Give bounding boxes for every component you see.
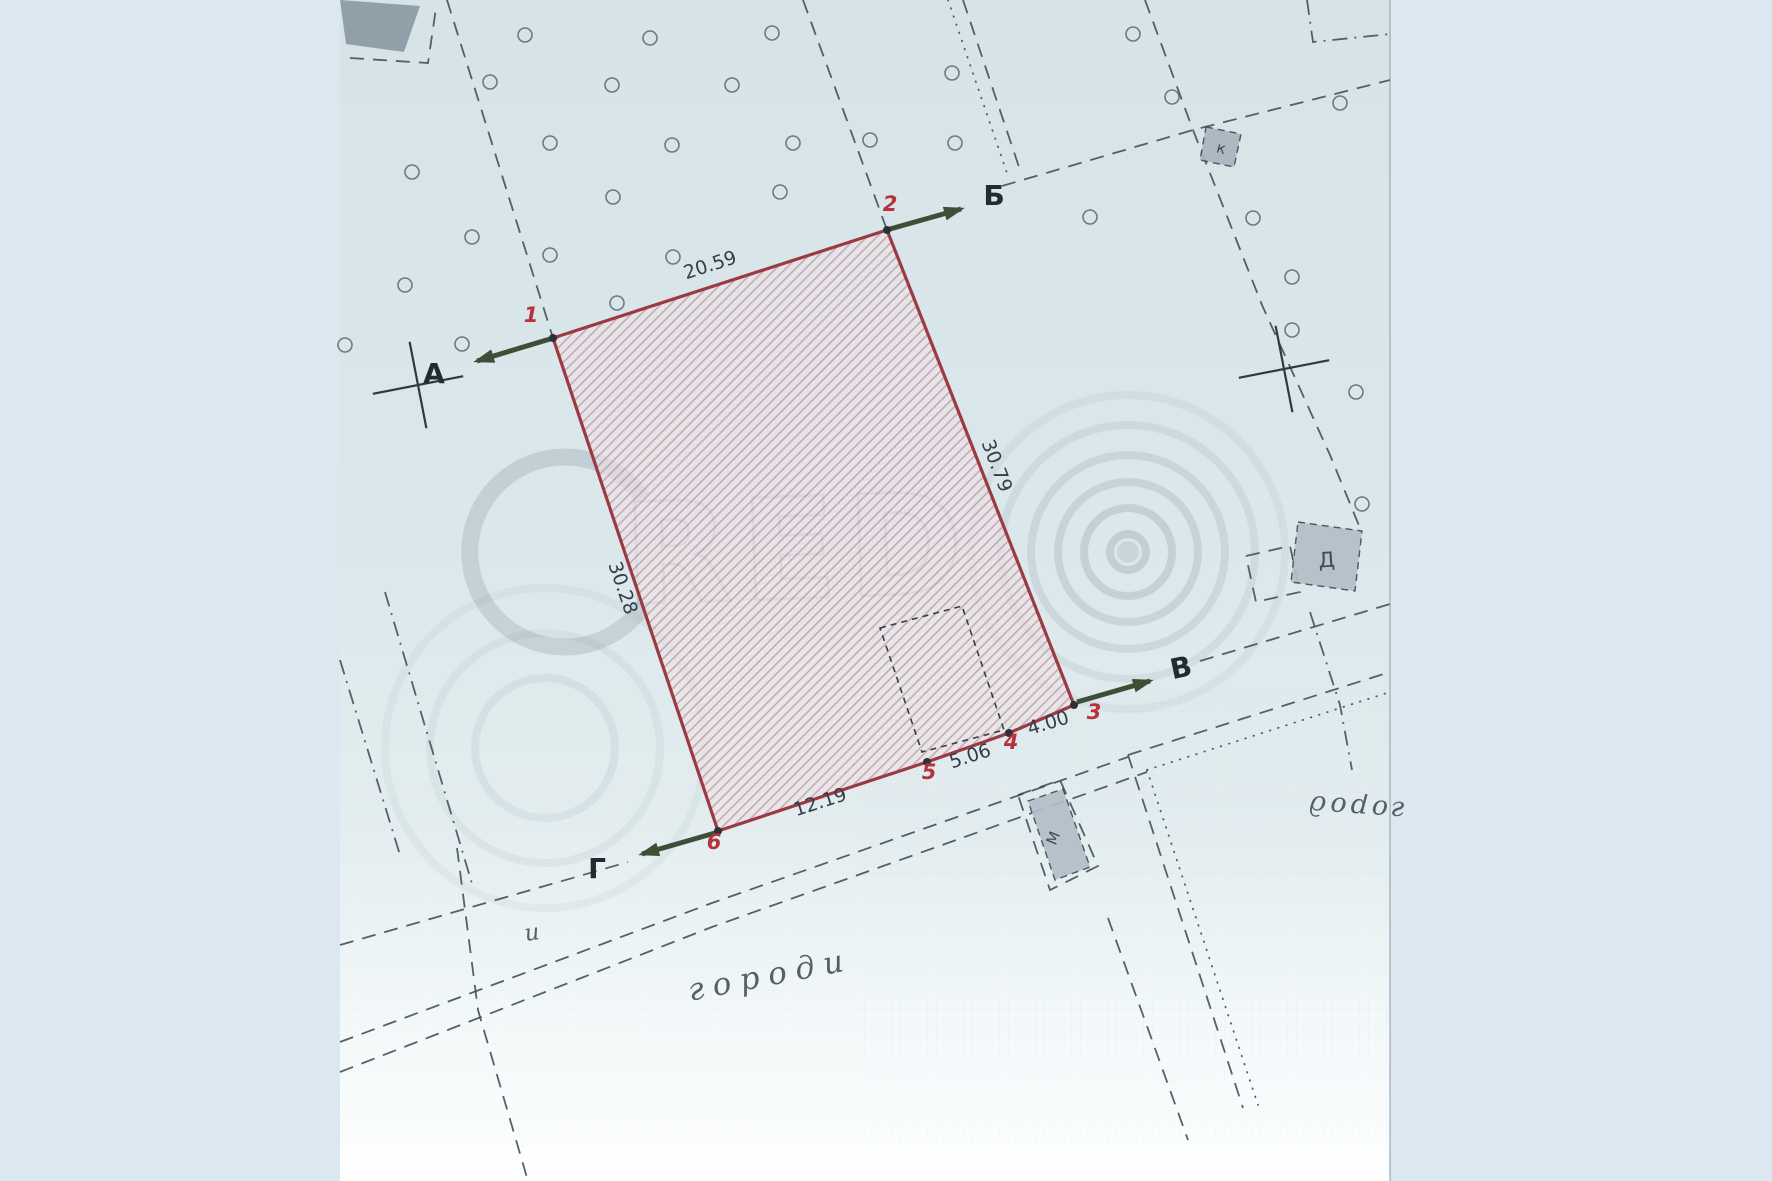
paper-grid-texture [340, 880, 860, 1150]
vertex-number-3: 3 [1087, 700, 1102, 724]
building-d-label: Д [1317, 547, 1335, 572]
vertex-number-1: 1 [524, 303, 539, 327]
parcel-vertex-1 [549, 334, 557, 342]
scanned-cadastral-plan: Scanned cadastral site plan with highlig… [0, 0, 1772, 1181]
map-canvas: REDкДМАБВГ12345620.5930.794.005.0612.193… [0, 0, 1772, 1181]
vertex-number-2: 2 [883, 192, 898, 216]
vertex-number-6: 6 [707, 830, 722, 854]
parcel-vertex-3 [1070, 701, 1078, 709]
direction-letter-Б: Б [983, 179, 1004, 212]
direction-letter-Г: Г [588, 852, 606, 885]
parcel-vertex-2 [883, 226, 891, 234]
vertex-number-5: 5 [922, 760, 937, 784]
watermark-copyright-center [1117, 541, 1139, 563]
direction-letter-А: А [423, 357, 445, 390]
vertex-number-4: 4 [1003, 730, 1019, 754]
garden-label-right: город [1304, 789, 1406, 827]
